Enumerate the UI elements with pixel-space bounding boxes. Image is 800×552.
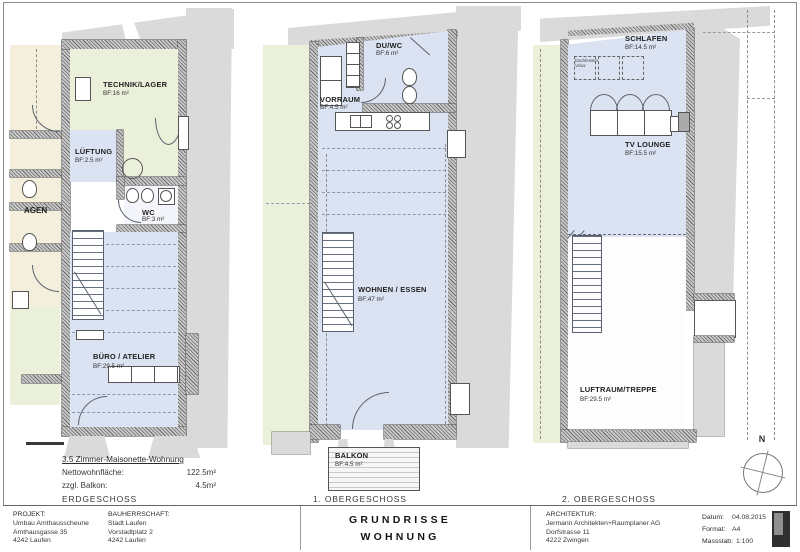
wall <box>62 40 186 49</box>
adjacent-room-fill <box>533 45 561 443</box>
dashed-line <box>106 288 176 289</box>
floor-label: ERDGESCHOSS <box>62 494 137 504</box>
window-box <box>450 383 470 415</box>
room-area: BF:4.5 m² <box>335 461 363 468</box>
wall-niche <box>447 130 466 158</box>
datum-value: 04.08.2015 <box>732 514 766 521</box>
room-area: BF:15.5 m² <box>625 150 656 157</box>
dashed-line <box>322 170 446 171</box>
architektur-column: ARCHITEKTUR: Jermann Architekten+Raumpla… <box>546 511 660 546</box>
meta-row: Massstab:1:100 <box>702 535 766 547</box>
room-area: BF:29.5 m² <box>93 363 124 370</box>
cabinet <box>75 77 91 101</box>
room-area: BF:2.5 m² <box>75 157 103 164</box>
dashed-line <box>106 266 176 267</box>
adjacent-room-label: AGEN <box>24 206 47 215</box>
wc-fixture <box>22 233 37 251</box>
projekt-line: 4242 Laufen <box>13 537 89 546</box>
title-block-divider <box>300 506 301 550</box>
dashed-line <box>266 203 310 204</box>
room-area: BF:29.5 m² <box>580 396 611 403</box>
entry-door-leaf <box>178 116 189 150</box>
room-balkon: BALKON BF:4.5 m² <box>328 447 420 491</box>
apartment-summary-title: 3.5 Zimmer-Maisonette-Wohnung <box>62 455 184 464</box>
room-label: DU/WC <box>376 41 402 50</box>
wall-stub <box>272 432 310 454</box>
shelf <box>346 42 360 88</box>
window-box <box>694 300 736 338</box>
wall <box>448 30 456 432</box>
stove-burner <box>394 122 401 129</box>
wc-fixture <box>141 188 154 203</box>
room-label: VORRAUM <box>320 95 360 104</box>
roof-window <box>622 56 644 80</box>
room-label: BÜRO / ATELIER <box>93 352 155 361</box>
architektur-label: ARCHITEKTUR: <box>546 511 660 520</box>
summary-label: Nettowohnfläche: <box>62 468 124 477</box>
wall <box>186 334 198 394</box>
room-label: LÜFTUNG <box>75 147 112 156</box>
north-arrow-icon <box>743 453 783 493</box>
room-label: SCHLAFEN <box>625 34 667 43</box>
massstab-value: 1:100 <box>736 538 753 545</box>
projekt-line: Amthausgasse 35 <box>13 529 89 538</box>
dashed-line <box>445 144 446 424</box>
appliance <box>12 291 29 309</box>
drawing-sheet: AGEN <box>0 0 800 552</box>
architektur-line: Jermann Architekten+Raumplaner AG <box>546 520 660 529</box>
roof-outline-dashed <box>774 10 775 440</box>
room-label: LUFTRAUM/TREPPE <box>580 385 657 394</box>
roof-outline-dashed <box>703 32 775 33</box>
wall <box>117 177 124 199</box>
projekt-label: PROJEKT: <box>13 511 89 520</box>
dashed-line <box>322 148 446 149</box>
wall <box>310 425 340 439</box>
summary-row: Nettowohnfläche: 122.5m² <box>62 468 216 477</box>
dashed-line <box>106 310 176 311</box>
stove-burner <box>394 115 401 122</box>
format-value: A4 <box>732 526 740 533</box>
room-lueftung <box>70 130 117 182</box>
datum-label: Datum: <box>702 514 732 523</box>
roof-outline-dashed <box>747 10 748 440</box>
stove-burner <box>386 115 393 122</box>
plan-obergeschoss-1: BALKON BF:4.5 m² VORRAUM BF:4.5 m² DU/WC… <box>258 4 523 502</box>
room-label: TECHNIK/LAGER <box>103 80 167 89</box>
projekt-line: Umbau Amthausscheune <box>13 520 89 529</box>
wall <box>686 28 694 310</box>
dashed-line <box>322 192 446 193</box>
floor-label: 2. OBERGESCHOSS <box>562 494 656 504</box>
wall <box>310 42 318 442</box>
room-label: WOHNEN / ESSEN <box>358 285 427 294</box>
room-area: BF:14.5 m² <box>625 44 656 51</box>
ground-line <box>26 442 64 445</box>
door-arc <box>118 200 141 223</box>
neighbor-wall-band <box>694 342 724 436</box>
room-area: BF:3 m² <box>142 216 164 223</box>
summary-value: 4.5m² <box>196 481 216 490</box>
title-block: PROJEKT: Umbau Amthausscheune Amthausgas… <box>3 505 797 550</box>
room-area: BF:6 m² <box>376 50 398 57</box>
neighbor-wall-band <box>694 10 740 300</box>
title-block-divider <box>530 506 531 550</box>
north-label: N <box>752 434 772 444</box>
format-label: Format: <box>702 526 732 535</box>
staircase <box>322 232 354 332</box>
wc-fixture <box>402 68 417 86</box>
room-label: TV LOUNGE <box>625 140 671 149</box>
dashed-line <box>540 49 541 439</box>
wc-fixture <box>402 86 417 104</box>
wall <box>694 336 734 342</box>
architect-logo-inner <box>774 513 783 535</box>
bauherrschaft-line: 4242 Laufen <box>108 537 170 546</box>
meta-row: Datum:04.08.2015 <box>702 511 766 523</box>
bauherrschaft-column: BAUHERRSCHAFT: Stadt Laufen Vorstadtplat… <box>108 511 170 546</box>
table <box>76 330 104 340</box>
washing-machine-drum <box>160 190 172 202</box>
wc-fixture <box>22 180 37 198</box>
wall <box>10 170 62 177</box>
room-area: BF:4.5 m² <box>320 104 348 111</box>
bauherrschaft-line: Stadt Laufen <box>108 520 170 529</box>
architect-logo <box>772 511 790 547</box>
wall <box>62 427 186 436</box>
neighbor-wall-band <box>456 6 518 448</box>
dashed-line <box>72 394 176 395</box>
boiler-fixture <box>122 158 143 179</box>
staircase <box>572 235 602 333</box>
room-area: BF:47 m² <box>358 296 384 303</box>
wall <box>561 430 696 442</box>
sheet-title-line2: WOHNUNG <box>330 531 470 543</box>
wall <box>384 425 456 439</box>
adjacent-room-fill <box>263 45 310 445</box>
roof-outline-dashed <box>747 98 775 99</box>
adjacent-room-fill <box>10 307 60 405</box>
stove-burner <box>386 122 393 129</box>
dashed-line <box>322 214 446 215</box>
wall <box>363 104 456 112</box>
kitchen-sink <box>350 115 372 128</box>
wall <box>10 131 62 138</box>
wall <box>561 40 568 442</box>
wall-stub <box>568 442 688 448</box>
wall <box>694 294 734 300</box>
dashed-line <box>106 244 176 245</box>
floor-label: 1. OBERGESCHOSS <box>313 494 407 504</box>
wardrobe <box>590 110 672 136</box>
summary-value: 122.5m² <box>187 468 216 477</box>
projekt-column: PROJEKT: Umbau Amthausscheune Amthausgas… <box>13 511 89 546</box>
bauherrschaft-line: Vorstadtplatz 2 <box>108 529 170 538</box>
plan-erdgeschoss: AGEN <box>8 4 240 502</box>
summary-row: zzgl. Balkon: 4.5m² <box>62 481 216 490</box>
meta-row: Format:A4 <box>702 523 766 535</box>
cabinet <box>678 112 690 132</box>
plan-obergeschoss-2: Dachfenster Velux SCHLAFEN BF:14.5 m² TV… <box>528 4 796 502</box>
wall <box>22 375 62 383</box>
summary-label: zzgl. Balkon: <box>62 481 107 490</box>
wall <box>117 225 186 232</box>
wall <box>117 177 186 185</box>
wall <box>117 130 123 182</box>
sheet-title: GRUNDRISSE WOHNUNG <box>330 514 470 543</box>
sheet-title-line1: GRUNDRISSE <box>330 514 470 526</box>
room-area: BF:16 m² <box>103 90 129 97</box>
bauherrschaft-label: BAUHERRSCHAFT: <box>108 511 170 520</box>
room-label: BALKON <box>335 451 368 460</box>
architektur-line: Dorfstrasse 11 <box>546 529 660 538</box>
roof-window-note: Velux <box>575 63 586 68</box>
massstab-label: Massstab: <box>702 538 736 547</box>
architektur-line: 4222 Zwingen <box>546 537 660 546</box>
roof-window <box>598 56 620 80</box>
wall <box>62 40 70 436</box>
meta-column: Datum:04.08.2015 Format:A4 Massstab:1:10… <box>702 511 766 546</box>
